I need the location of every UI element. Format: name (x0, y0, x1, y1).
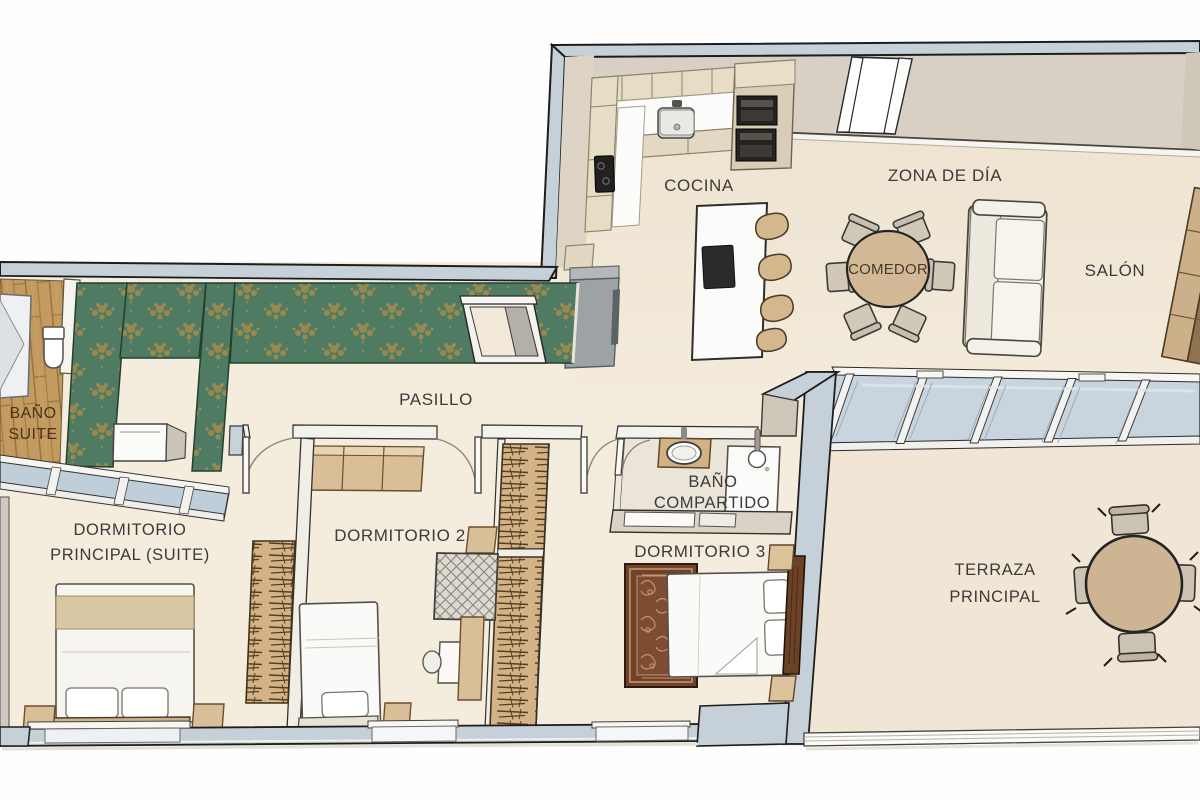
svg-text:DORMITORIO 2: DORMITORIO 2 (334, 526, 466, 545)
svg-text:SUITE: SUITE (8, 426, 57, 443)
svg-text:COMEDOR: COMEDOR (848, 261, 928, 278)
svg-text:BAÑO: BAÑO (10, 402, 57, 422)
svg-text:DORMITORIO: DORMITORIO (74, 521, 187, 539)
svg-text:DORMITORIO 3: DORMITORIO 3 (634, 542, 766, 561)
svg-text:COMPARTIDO: COMPARTIDO (654, 494, 770, 512)
svg-text:PRINCIPAL (SUITE): PRINCIPAL (SUITE) (50, 546, 210, 564)
svg-text:ZONA DE DÍA: ZONA DE DÍA (888, 166, 1002, 185)
svg-text:PRINCIPAL: PRINCIPAL (949, 588, 1040, 606)
svg-text:BAÑO: BAÑO (688, 471, 737, 491)
svg-text:SALÓN: SALÓN (1085, 261, 1146, 280)
svg-text:TERRAZA: TERRAZA (954, 561, 1035, 579)
svg-text:PASILLO: PASILLO (399, 390, 473, 409)
svg-text:COCINA: COCINA (664, 176, 734, 195)
